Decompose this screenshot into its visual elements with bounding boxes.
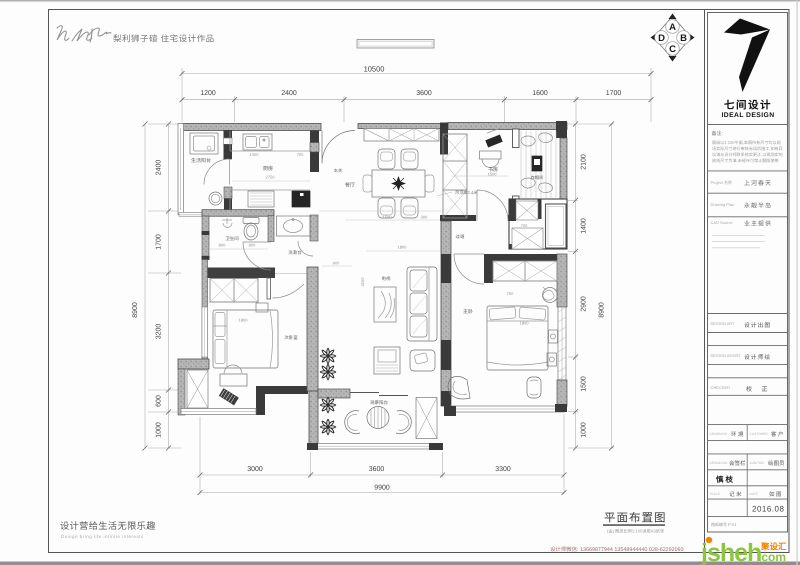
- svg-text:设计营给生活无限乐趣: 设计营给生活无限乐趣: [60, 521, 156, 531]
- svg-text:C: C: [669, 44, 676, 55]
- svg-text:书房: 书房: [488, 166, 498, 173]
- svg-text:9900: 9900: [374, 485, 390, 492]
- svg-text:750: 750: [507, 291, 514, 296]
- svg-text:备注:: 备注:: [712, 130, 723, 137]
- svg-text:DRAWN.NO: DRAWN.NO: [710, 432, 728, 436]
- svg-text:衣帽间: 衣帽间: [531, 175, 544, 180]
- svg-text:700: 700: [521, 223, 528, 228]
- svg-text:慎枝: 慎枝: [716, 475, 735, 484]
- svg-text:600: 600: [156, 395, 163, 407]
- svg-text:DATE: DATE: [750, 492, 758, 496]
- svg-text:1800: 1800: [398, 245, 408, 250]
- svg-text:Project 名称: Project 名称: [711, 180, 733, 185]
- svg-text:1000: 1000: [156, 422, 163, 438]
- svg-text:议请与设计师联系核实更正,以现场实地: 议请与设计师联系核实更正,以现场实地: [712, 152, 783, 157]
- svg-text:DESIGN.NO: DESIGN.NO: [710, 461, 728, 465]
- svg-text:校 正: 校 正: [746, 385, 772, 393]
- svg-text:CAD Source: CAD Source: [711, 220, 734, 225]
- svg-text:电视: 电视: [382, 276, 391, 281]
- svg-text:2400: 2400: [156, 160, 163, 176]
- svg-text:3000: 3000: [247, 466, 263, 473]
- svg-text:DESIGN ART: DESIGN ART: [711, 321, 736, 326]
- svg-text:2400: 2400: [281, 90, 297, 97]
- svg-text:1800: 1800: [239, 318, 249, 323]
- svg-text:2016.08: 2016.08: [752, 505, 784, 514]
- svg-text:环 境: 环 境: [731, 431, 744, 438]
- svg-text:图纸以1:100平面,本图所有尺寸均以现: 图纸以1:100平面,本图所有尺寸均以现: [712, 140, 781, 145]
- svg-text:2750: 2750: [266, 175, 276, 180]
- svg-text:1300: 1300: [250, 152, 260, 157]
- svg-text:绘图员: 绘图员: [768, 460, 785, 467]
- svg-text:观景阳台: 观景阳台: [370, 400, 388, 405]
- svg-text:800: 800: [219, 243, 226, 248]
- svg-text:设计师绘: 设计师绘: [744, 354, 771, 361]
- svg-text:卫生间: 卫生间: [225, 236, 239, 241]
- svg-text:洗漱台: 洗漱台: [288, 250, 302, 255]
- svg-text:如 图: 如 图: [769, 491, 782, 498]
- svg-text:CUSTOMER: CUSTOMER: [750, 432, 769, 436]
- svg-text:3600: 3600: [369, 466, 385, 473]
- svg-text:B: B: [680, 33, 687, 44]
- svg-text:设计师微信: 13669877944 13548944440: 设计师微信: 13669877944 13548944440 028-62292…: [550, 546, 684, 553]
- svg-text:1200: 1200: [200, 90, 216, 97]
- svg-text:主卧: 主卧: [463, 308, 473, 315]
- svg-text:七间设计: 七间设计: [724, 100, 772, 112]
- svg-text:聚设汇: 聚设汇: [760, 542, 787, 552]
- svg-text:SCALE: SCALE: [710, 492, 720, 496]
- svg-text:900: 900: [333, 261, 340, 266]
- svg-text:AUDITOR: AUDITOR: [750, 461, 765, 465]
- svg-text:D: D: [658, 33, 665, 44]
- svg-text:8900: 8900: [599, 302, 606, 318]
- svg-text:2100: 2100: [581, 154, 588, 170]
- svg-text:吊顶高2.4米: 吊顶高2.4米: [455, 190, 478, 195]
- svg-text:3600: 3600: [416, 90, 432, 97]
- svg-text:过道: 过道: [456, 234, 465, 239]
- svg-text:1700: 1700: [156, 234, 163, 250]
- svg-text:平面布置图: 平面布置图: [604, 512, 667, 525]
- svg-text:厨房: 厨房: [263, 165, 273, 172]
- svg-text:生活阳台: 生活阳台: [191, 157, 211, 164]
- svg-text:设计出图: 设计出图: [744, 322, 771, 329]
- svg-text:8900: 8900: [132, 302, 139, 318]
- svg-text:1800: 1800: [520, 321, 530, 326]
- svg-text:1500: 1500: [383, 215, 393, 220]
- svg-text:1700: 1700: [606, 90, 622, 97]
- svg-text:上河春天: 上河春天: [744, 179, 772, 187]
- svg-text:(金) 图纸比例1:100适用A3纸张: (金) 图纸比例1:100适用A3纸张: [607, 529, 665, 534]
- svg-text:玄关: 玄关: [334, 168, 343, 173]
- svg-text:Design bring life infinite i: Design bring life infinite interests: [61, 534, 144, 539]
- svg-text:10500: 10500: [364, 65, 385, 74]
- svg-text:IDEAL DESIGN: IDEAL DESIGN: [721, 112, 774, 119]
- svg-text:业主提供: 业主提供: [744, 220, 772, 228]
- svg-text:会签栏: 会签栏: [729, 460, 746, 467]
- svg-text:2900: 2900: [581, 296, 588, 312]
- svg-text:梨利狮子碹 住宅设计作品: 梨利狮子碹 住宅设计作品: [113, 34, 215, 44]
- svg-text:.com: .com: [758, 550, 786, 564]
- svg-text:3200: 3200: [156, 324, 163, 340]
- svg-text:1000: 1000: [581, 422, 588, 438]
- svg-text:记 米: 记 米: [729, 491, 742, 498]
- svg-text:图纸编号 P-01: 图纸编号 P-01: [711, 522, 737, 527]
- svg-text:放线尺寸为准,未经许可禁止翻版使用: 放线尺寸为准,未经许可禁止翻版使用: [712, 158, 779, 163]
- svg-text:永靓半岛: 永靓半岛: [744, 202, 772, 210]
- svg-text:客 户: 客 户: [771, 431, 784, 438]
- svg-text:次卧室: 次卧室: [284, 335, 298, 340]
- svg-text:A: A: [669, 22, 676, 33]
- svg-text:餐厅: 餐厅: [345, 182, 355, 189]
- svg-text:CHECKED: CHECKED: [711, 385, 731, 390]
- svg-text:场实际尺寸进行审核无误后施工,如有异: 场实际尺寸进行审核无误后施工,如有异: [712, 146, 783, 151]
- svg-text:3150: 3150: [360, 277, 365, 287]
- svg-text:300: 300: [421, 215, 428, 220]
- svg-text:700: 700: [297, 152, 304, 157]
- svg-text:DESIGN ASSIST: DESIGN ASSIST: [711, 353, 742, 358]
- svg-text:1600: 1600: [532, 90, 548, 97]
- svg-text:900: 900: [249, 243, 256, 248]
- svg-text:3300: 3300: [495, 466, 511, 473]
- svg-text:Drawing Plan: Drawing Plan: [711, 202, 735, 207]
- svg-text:1400: 1400: [581, 218, 588, 234]
- svg-text:1500: 1500: [581, 376, 588, 392]
